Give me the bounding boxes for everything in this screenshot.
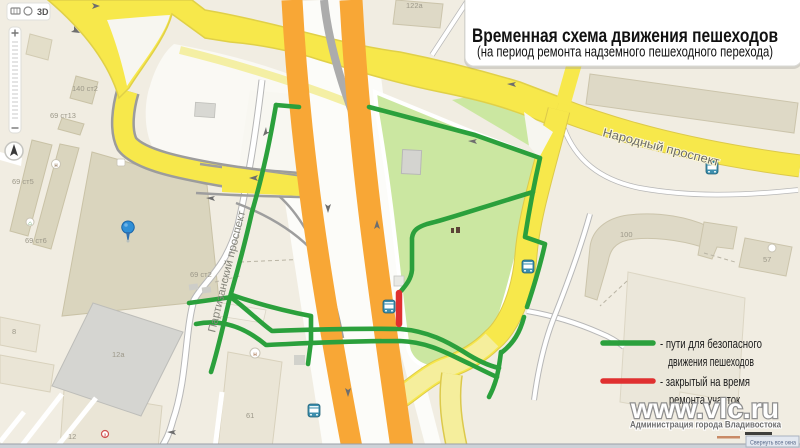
svg-text:- закрытый на время: - закрытый на время xyxy=(660,374,750,389)
svg-text:69 ст13: 69 ст13 xyxy=(50,111,76,120)
svg-text:Администрация города Владивост: Администрация города Владивостока xyxy=(630,420,782,431)
svg-text:122а: 122а xyxy=(406,1,424,10)
svg-text:69 ст6: 69 ст6 xyxy=(25,236,47,245)
svg-text:⌂: ⌂ xyxy=(28,221,32,227)
svg-text:н: н xyxy=(253,351,257,358)
svg-text:Свернуть все окна: Свернуть все окна xyxy=(750,440,796,447)
svg-text:100: 100 xyxy=(620,230,633,239)
svg-text:a: a xyxy=(104,433,107,439)
svg-text:- пути для безопасного: - пути для безопасного xyxy=(660,336,762,351)
svg-text:69 ст2: 69 ст2 xyxy=(190,270,212,279)
svg-text:12а: 12а xyxy=(112,350,125,359)
svg-text:движения пешеходов: движения пешеходов xyxy=(668,354,754,369)
svg-text:57: 57 xyxy=(763,255,771,264)
svg-text:140 ст2: 140 ст2 xyxy=(72,84,98,93)
svg-text:3D: 3D xyxy=(37,7,49,17)
svg-text:н: н xyxy=(54,163,57,169)
svg-text:8: 8 xyxy=(12,327,16,336)
svg-text:69 ст5: 69 ст5 xyxy=(12,177,34,186)
svg-text:12: 12 xyxy=(68,432,76,441)
svg-text:(на период ремонта надземного: (на период ремонта надземного пешеходног… xyxy=(477,45,773,61)
svg-text:61: 61 xyxy=(246,411,254,420)
